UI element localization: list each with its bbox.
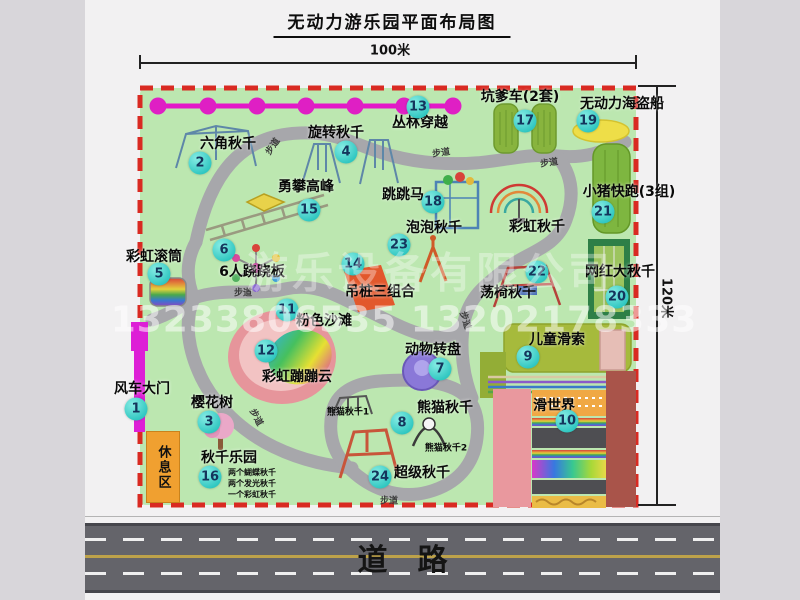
walkway-label-1: 步道 — [431, 144, 451, 159]
attraction-label-15: 勇攀高峰 — [278, 176, 334, 196]
attraction-label-17: 坑爹车(2套) — [481, 86, 560, 106]
walkway-label-2: 步道 — [539, 154, 559, 169]
panel-edge-line — [85, 516, 720, 517]
attraction-label-22: 荡椅秋千 — [480, 282, 536, 302]
plan-sheet: 无动力游乐园平面布局图 100米 120米 休息区 游乐设备有限公司 13233… — [0, 0, 800, 600]
page-title: 无动力游乐园平面布局图 — [274, 8, 511, 38]
extra-label-1: 熊猫秋千1 — [327, 405, 369, 418]
attraction-badge-1: 1 — [125, 398, 148, 421]
attraction-badge-4: 4 — [335, 141, 358, 164]
attraction-label-6: 6人跷跷板 — [219, 261, 285, 281]
dim-tick-top-left — [139, 55, 141, 69]
dim-line-top — [140, 62, 636, 64]
attraction-badge-15: 15 — [298, 199, 321, 222]
attraction-badge-10: 10 — [556, 410, 579, 433]
extra-label-0: 彩虹秋千 — [509, 216, 565, 236]
attraction-badge-13: 13 — [407, 96, 430, 119]
road: 道 路 — [85, 523, 720, 593]
attraction-badge-22: 22 — [526, 261, 549, 284]
attraction-badge-2: 2 — [189, 152, 212, 175]
attraction-label-9: 儿童滑索 — [529, 329, 585, 349]
attraction-badge-23: 23 — [388, 234, 411, 257]
attraction-badge-19: 19 — [577, 110, 600, 133]
attraction-badge-20: 20 — [606, 286, 629, 309]
attraction-label-20: 网红大秋千 — [585, 261, 655, 281]
attraction-badge-24: 24 — [369, 466, 392, 489]
attraction-badge-6: 6 — [213, 239, 236, 262]
rest-area-label: 休息区 — [154, 445, 173, 490]
attraction-label-7: 动物转盘 — [405, 339, 461, 359]
attraction-label-12: 彩虹蹦蹦云 — [262, 366, 332, 386]
attraction-badge-17: 17 — [514, 110, 537, 133]
attraction-label-24: 超级秋千 — [394, 462, 450, 482]
attraction-badge-7: 7 — [429, 358, 452, 381]
attraction-label-16: 秋千乐园 — [201, 447, 257, 467]
walkway-label-3: 步道 — [234, 286, 252, 299]
dim-line-right — [656, 86, 658, 506]
attraction-badge-3: 3 — [198, 411, 221, 434]
walkway-label-6: 步道 — [380, 494, 398, 507]
extra-label-2: 熊猫秋千2 — [425, 441, 467, 454]
attraction-badge-8: 8 — [391, 412, 414, 435]
attraction-badge-12: 12 — [255, 340, 278, 363]
attraction-badge-9: 9 — [517, 346, 540, 369]
swing-park-note-0: 两个蝴蝶秋千 — [228, 467, 276, 478]
dim-label-top: 100米 — [370, 40, 410, 59]
dim-tick-top-right — [635, 55, 637, 69]
attraction-label-21: 小猪快跑(3组) — [583, 181, 676, 201]
attraction-label-14: 吊桩三组合 — [345, 281, 415, 301]
attraction-badge-18: 18 — [422, 191, 445, 214]
swing-park-note-1: 两个发光秋千 — [228, 478, 276, 489]
attraction-badge-14: 14 — [342, 253, 365, 276]
rest-area: 休息区 — [146, 431, 180, 503]
attraction-badge-11: 11 — [276, 299, 299, 322]
attraction-label-11: 粉色沙滩 — [296, 310, 352, 330]
dim-label-right: 120米 — [659, 278, 678, 318]
attraction-label-1: 风车大门 — [114, 378, 170, 398]
attraction-badge-5: 5 — [148, 263, 171, 286]
dim-tick-right-bottom — [638, 504, 676, 506]
dim-tick-right-top — [638, 85, 676, 87]
attraction-label-2: 六角秋千 — [200, 133, 256, 153]
attraction-label-8: 熊猫秋千 — [417, 397, 473, 417]
road-label: 道 路 — [358, 535, 448, 579]
attraction-label-3: 樱花树 — [191, 392, 233, 412]
attraction-label-18: 跳跳马 — [382, 184, 424, 204]
attraction-badge-21: 21 — [592, 201, 615, 224]
attraction-label-4: 旋转秋千 — [308, 122, 364, 142]
attraction-label-23: 泡泡秋千 — [406, 217, 462, 237]
swing-park-note-2: 一个彩虹秋千 — [228, 489, 276, 500]
slide-world-drawing — [493, 371, 636, 508]
attraction-badge-16: 16 — [199, 466, 222, 489]
